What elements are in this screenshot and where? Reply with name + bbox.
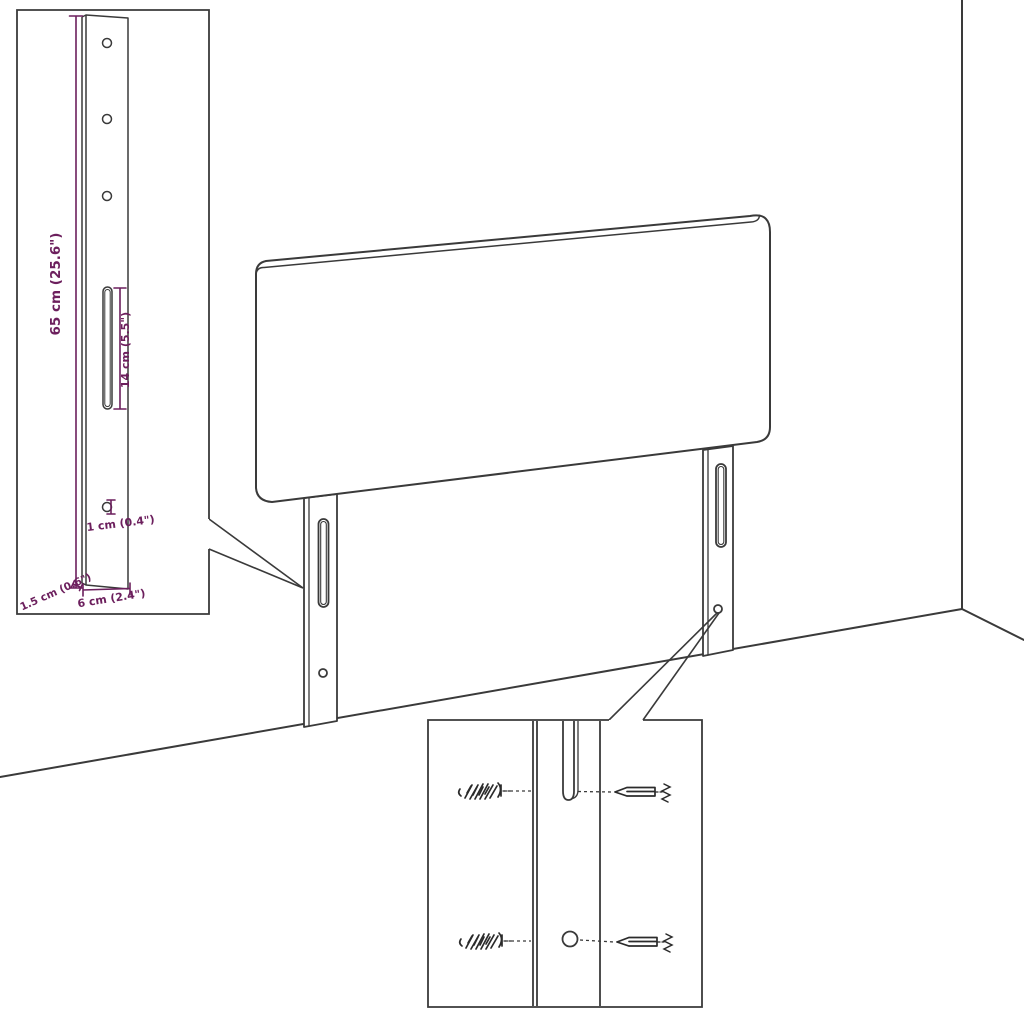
right-mounting-leg <box>703 446 733 656</box>
right-leg-slot <box>716 464 726 547</box>
dim-height-label: 65 cm (25.6") <box>48 233 64 336</box>
left-leg-hole <box>319 669 327 677</box>
diagram-canvas: 65 cm (25.6") 14 cm (5.5") 1 cm (0.4") 1… <box>0 0 1024 1024</box>
headboard-outline <box>256 215 770 502</box>
right-leg-hole <box>714 605 722 613</box>
floor-line-right <box>962 609 1024 640</box>
bracket-callout-pointer <box>209 519 303 588</box>
left-mounting-leg <box>304 494 337 727</box>
dim-slot-label: 14 cm (5.5") <box>119 312 132 388</box>
assembly-diagram: 65 cm (25.6") 14 cm (5.5") 1 cm (0.4") 1… <box>0 0 1024 1024</box>
bracket-magnified <box>82 15 128 589</box>
headboard-panel <box>256 215 770 502</box>
mounting-detail-callout <box>428 613 719 1007</box>
left-leg-slot <box>319 519 329 607</box>
mounting-callout-box-fill <box>428 720 702 1007</box>
